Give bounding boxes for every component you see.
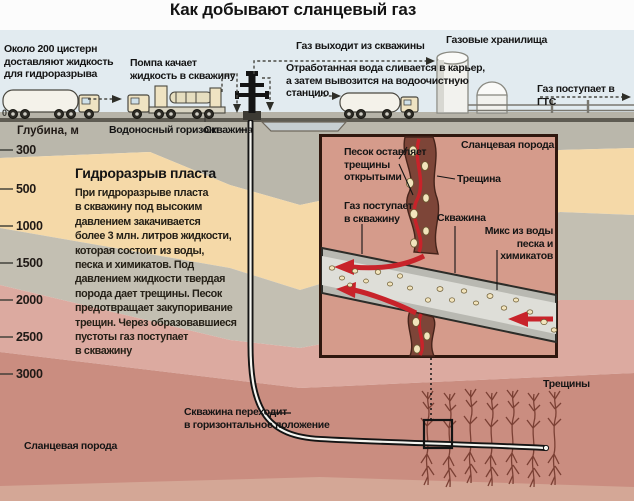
depth-tick-1500: 1500 (16, 256, 43, 270)
depth-tick-2000: 2000 (16, 293, 43, 307)
label-wellhead: Скважина (204, 124, 253, 137)
depth-tick-3000: 3000 (16, 367, 43, 381)
label-gas-out: Газ выходит из скважины (296, 40, 425, 53)
label-horizontal-well: Скважина переходит в горизонтальное поло… (184, 406, 330, 431)
label-pump-truck: Помпа качает жидкость в скважину (130, 57, 235, 82)
inset-label-shale: Сланцевая порода (461, 139, 554, 152)
inset-label-well: Скважина (437, 212, 486, 225)
inset-label-sand: Песок оставляет трещины открытыми (344, 146, 426, 184)
waste-pit (262, 122, 346, 131)
fracking-description: При гидроразрыве пласта в скважину под в… (75, 186, 237, 359)
inset-label-gas-in: Газ поступает в скважину (344, 200, 413, 225)
infographic-shale-gas: Как добывают сланцевый газ Около 200 цис… (0, 0, 634, 501)
page-title: Как добывают сланцевый газ (0, 0, 586, 20)
depth-tick-2500: 2500 (16, 330, 43, 344)
inset-label-mix: Микс из воды песка и химикатов (463, 225, 553, 263)
label-tanker-trucks: Около 200 цистерн доставляют жидкость дл… (4, 43, 113, 81)
label-gts: Газ поступает в ГТС (537, 83, 634, 108)
label-wastewater: Отработанная вода сливается в карьер, а … (286, 62, 485, 100)
depth-tick-500: 500 (16, 182, 36, 196)
depth-zero: 0 (2, 108, 7, 118)
fracking-heading: Гидроразрыв пласта (75, 165, 216, 181)
label-fractures: Трещины (543, 378, 590, 391)
inset-label-crack: Трещина (457, 173, 501, 186)
label-gas-storage: Газовые хранилища (446, 34, 547, 47)
depth-tick-300: 300 (16, 143, 36, 157)
depth-scale-header: Глубина, м (17, 125, 79, 137)
label-shale-bottom: Сланцевая порода (24, 440, 117, 453)
depth-tick-1000: 1000 (16, 219, 43, 233)
